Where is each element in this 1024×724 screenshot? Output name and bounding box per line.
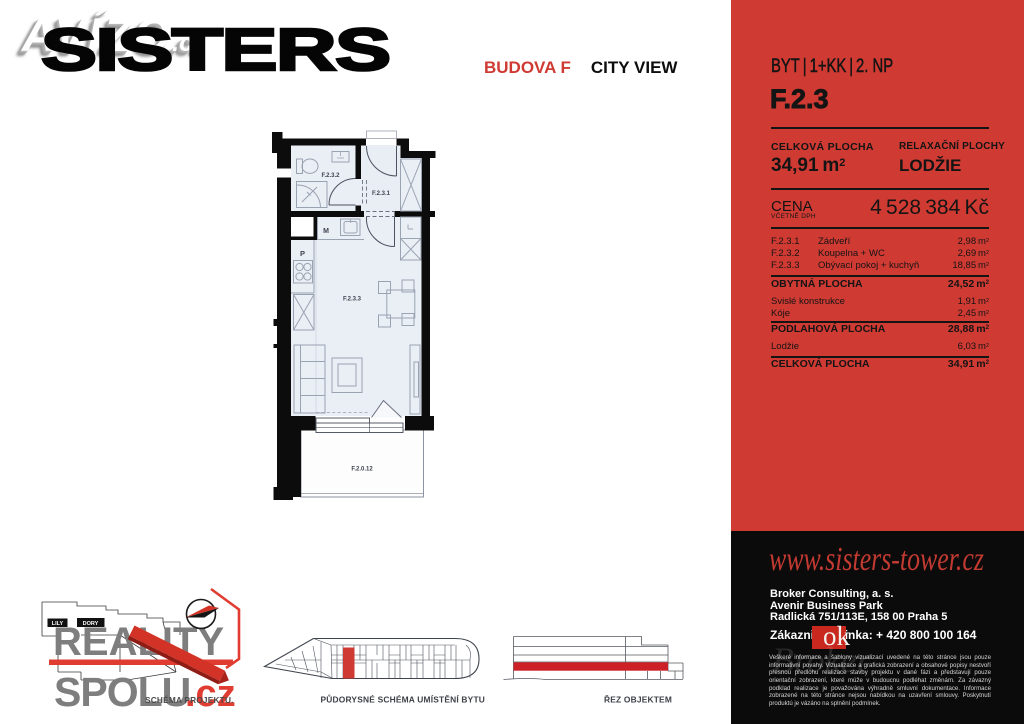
svg-text:F.2.0.12: F.2.0.12 [351,467,373,473]
svg-text:F.2.3.3: F.2.3.3 [343,297,362,303]
svg-text:M: M [323,228,329,235]
svg-text:F.2.3.1: F.2.3.1 [372,191,391,197]
svg-text:P: P [300,249,305,258]
svg-text:ŘEZ OBJEKTEM: ŘEZ OBJEKTEM [604,694,672,705]
svg-text:SPOLU: SPOLU [54,669,190,715]
svg-text:SCHÉMA PROJEKTU.: SCHÉMA PROJEKTU. [145,695,234,705]
svg-text:PŮDORYSNÉ SCHÉMA UMÍSTĚNÍ BYTU: PŮDORYSNÉ SCHÉMA UMÍSTĚNÍ BYTU [321,694,486,705]
svg-text:F.2.3.2: F.2.3.2 [321,173,340,179]
